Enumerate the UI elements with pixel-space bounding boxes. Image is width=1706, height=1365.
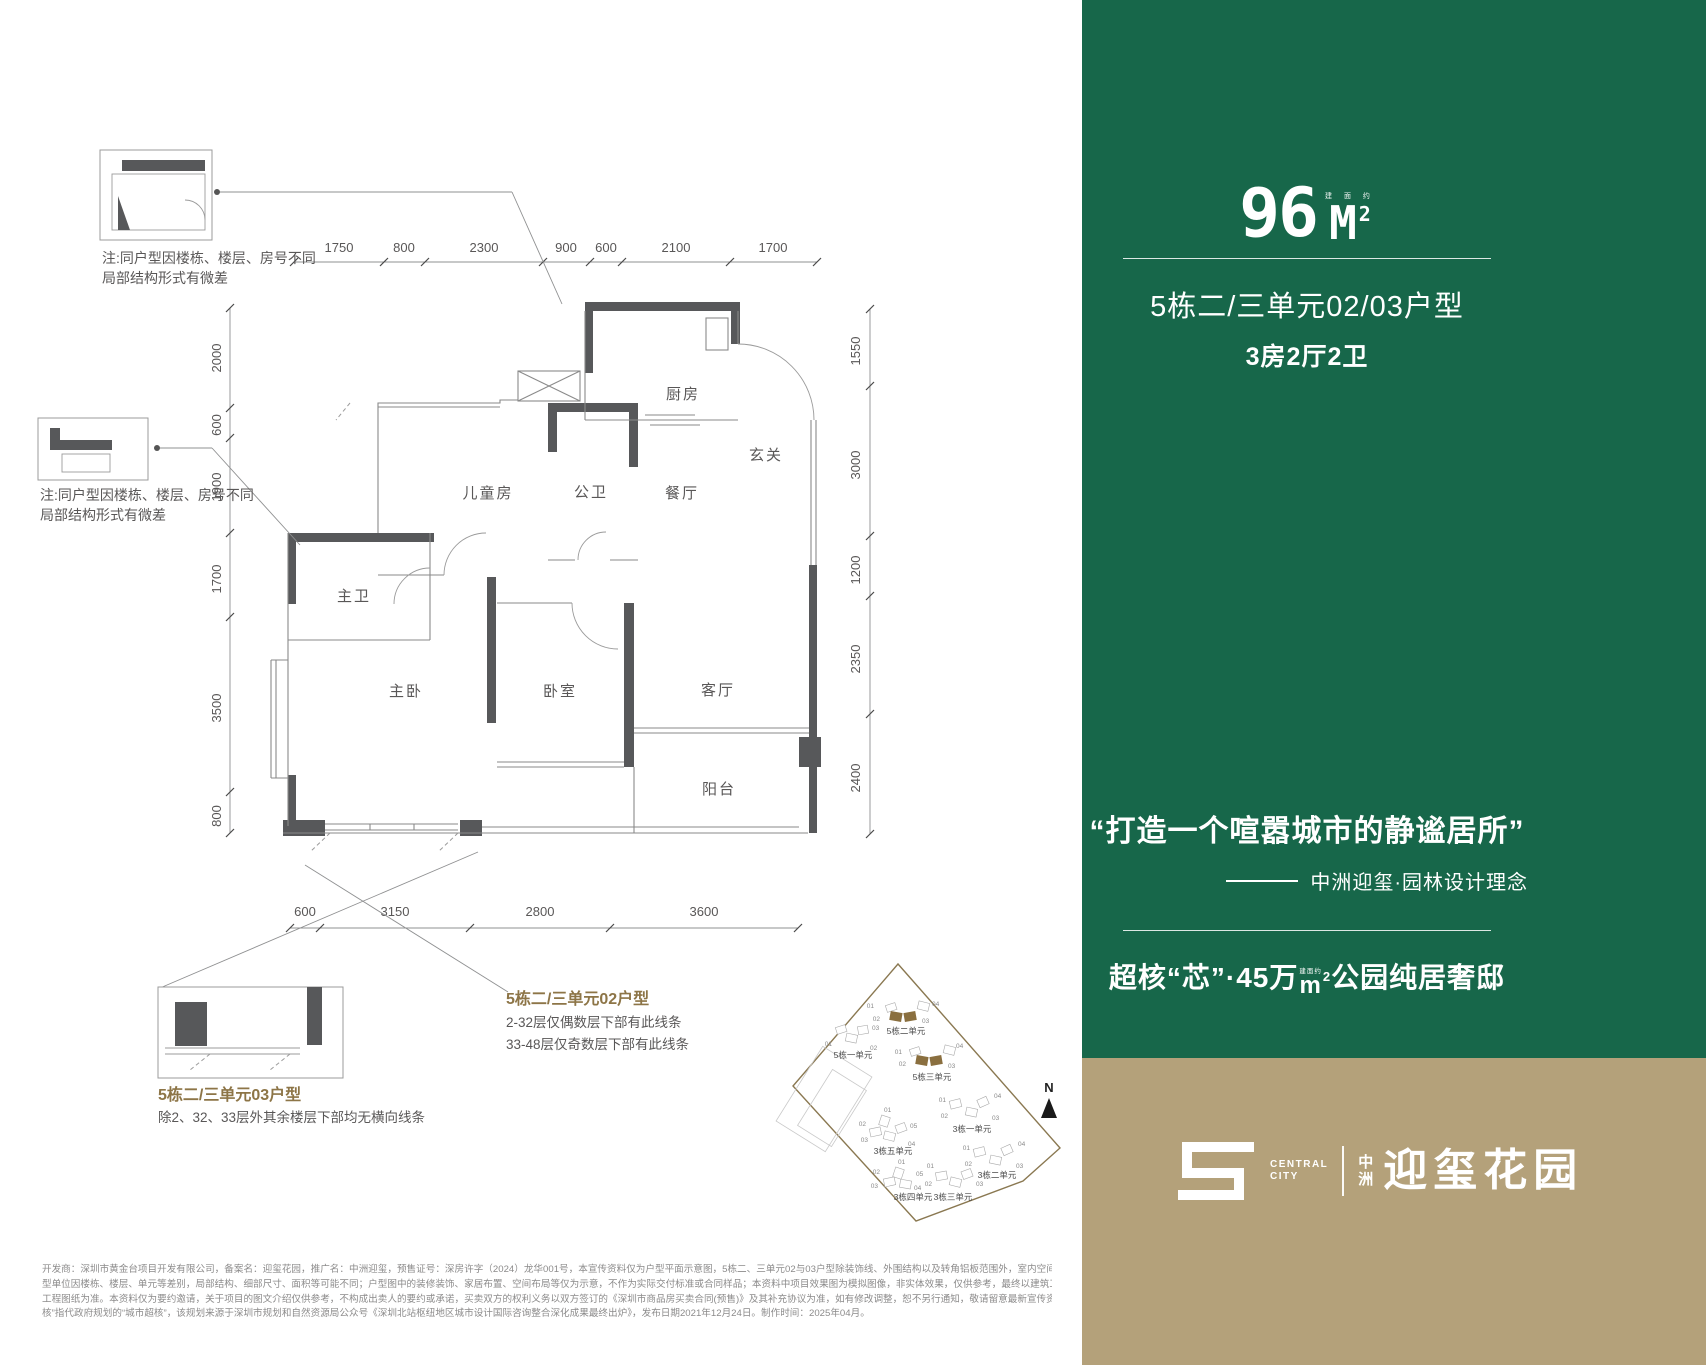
- central-city-wordmark: CENTRAL CITY: [1270, 1159, 1328, 1183]
- site-num: 02: [925, 1181, 933, 1188]
- dim-left-5: 800: [209, 805, 224, 827]
- dim-top-6: 1700: [759, 240, 788, 255]
- callout02-title: 5栋二/三单元02户型: [506, 989, 649, 1008]
- dim-left-0: 2000: [209, 344, 224, 373]
- room-label-master-bed: 主卧: [389, 683, 423, 700]
- site-cluster-label: 3栋三单元: [934, 1192, 973, 1202]
- area-figure: 96 建 面 约 M2: [1082, 186, 1532, 242]
- dim-right-3: 2350: [848, 645, 863, 674]
- dimension-lines: [230, 262, 870, 928]
- area-number: 96: [1239, 186, 1317, 242]
- legal-disclaimer: 开发商：深圳市黄金台项目开发有限公司，备案名：迎玺花园，推广名：中洲迎玺，预售证…: [42, 1263, 1052, 1322]
- site-num: 04: [932, 1001, 940, 1008]
- dim-right-0: 1550: [848, 337, 863, 366]
- dim-top-1: 800: [393, 240, 415, 255]
- dim-top-2: 2300: [470, 240, 499, 255]
- marketing-panel: 96 建 面 约 M2 5栋二/三单元02/03户型 3房2厅2卫 “打造一个喧…: [1082, 0, 1706, 1058]
- zhongzhou-stack: 中 洲: [1358, 1154, 1373, 1188]
- site-cluster-label: 5栋一单元: [834, 1050, 873, 1060]
- unit-layout-subtitle: 3房2厅2卫: [1082, 337, 1532, 373]
- logo-divider: [1342, 1146, 1344, 1196]
- site-num: 04: [914, 1185, 922, 1192]
- note1-line1: 注:同户型因楼栋、楼层、房号不同: [102, 250, 316, 266]
- dim-right-4: 2400: [848, 764, 863, 793]
- site-num: 03: [1016, 1163, 1024, 1170]
- site-num: 02: [873, 1169, 881, 1176]
- site-cluster-label: 3栋二单元: [978, 1170, 1017, 1180]
- site-num: 03: [976, 1181, 984, 1188]
- site-num: 01: [895, 1049, 903, 1056]
- site-num: 01: [898, 1159, 906, 1166]
- dim-right-2: 1200: [848, 556, 863, 585]
- dim-top-4: 600: [595, 240, 617, 255]
- quote-attribution: 中洲迎玺·园林设计理念: [1082, 866, 1532, 895]
- dim-bottom-3: 3600: [690, 904, 719, 919]
- site-num: 03: [861, 1137, 869, 1144]
- dim-top-3: 900: [555, 240, 577, 255]
- note2-line1: 注:同户型因楼栋、楼层、房号不同: [40, 487, 254, 503]
- project-name: 迎玺花园: [1383, 1149, 1583, 1193]
- site-num: 01: [867, 1003, 875, 1010]
- sqm-unit: 建面约 m: [1299, 965, 1322, 996]
- dim-bottom-1: 3150: [381, 904, 410, 919]
- room-labels: 厨房 玄关 餐厅 公卫 儿童房 主卫 主卧 卧室 客厅 阳台: [337, 386, 783, 798]
- callout03-line1: 除2、32、33层外其余楼层下部均无横向线条: [158, 1109, 426, 1125]
- detail-callout-3: [158, 852, 508, 1078]
- divider-line: [1123, 258, 1491, 259]
- site-num: 03: [948, 1063, 956, 1070]
- slogan-quote: “打造一个喧嚣城市的静谧居所”: [1082, 806, 1532, 850]
- room-label-entry: 玄关: [749, 447, 783, 464]
- site-num: 05: [910, 1123, 918, 1130]
- park-headline: 超核“芯”·45万 建面约 m 2 公园纯居奢邸: [1082, 956, 1532, 996]
- area-approx-label: 建 面 约: [1325, 191, 1375, 201]
- brand-panel: CENTRAL CITY 中 洲 迎玺花园: [1082, 1058, 1706, 1365]
- room-label-bedroom: 卧室: [543, 683, 577, 700]
- site-num: 01: [963, 1145, 971, 1152]
- site-cluster-3-3: 01 02 03 3栋三单元: [925, 1163, 984, 1202]
- site-num: 03: [872, 1025, 880, 1032]
- site-num: 02: [965, 1161, 973, 1168]
- site-cluster-5-1: 01 02 03 5栋一单元: [825, 1025, 880, 1060]
- dim-left-3: 1700: [209, 565, 224, 594]
- callout02-line1: 2-32层仅偶数层下部有此线条: [506, 1014, 682, 1030]
- brand-logo: CENTRAL CITY 中 洲 迎玺花园: [1178, 1142, 1583, 1200]
- dimension-labels: 1750 800 2300 900 600 2100 1700 2000 600…: [209, 240, 863, 919]
- room-label-dining: 餐厅: [665, 485, 699, 502]
- room-label-guest-bath: 公卫: [574, 484, 608, 501]
- site-cluster-label: 3栋一单元: [953, 1124, 992, 1134]
- disclaimer-line: 开发商：深圳市黄金台项目开发有限公司，备案名：迎玺花园，推广名：中洲迎玺，预售证…: [42, 1263, 1052, 1278]
- site-cluster-label: 3栋四单元: [894, 1192, 933, 1202]
- disclaimer-line: 工程图纸为准。本资料仅为要约邀请，关于项目的图文介绍仅供参考，不构成出卖人的要约…: [42, 1293, 1052, 1308]
- site-map: 01 02 03 04 5栋二单元 01 02 03 5栋一单元: [776, 964, 1060, 1221]
- dashed-marks: [310, 403, 458, 852]
- dim-top-5: 2100: [662, 240, 691, 255]
- site-num: 01: [939, 1097, 947, 1104]
- disclaimer-line: 核”指代政府规划的“城市超核”，该规划来源于深圳市规划和自然资源局公众号《深圳北…: [42, 1307, 1052, 1322]
- site-cluster-5-3: 01 02 03 04 5栋三单元: [895, 1043, 964, 1082]
- compass-label: N: [1044, 1080, 1053, 1095]
- site-cluster-3-1: 01 02 03 04 3栋一单元: [939, 1093, 1002, 1134]
- site-num: 04: [1018, 1141, 1026, 1148]
- dim-left-1: 600: [209, 414, 224, 436]
- divider-line-2: [1123, 930, 1491, 931]
- dim-right-1: 3000: [848, 451, 863, 480]
- dim-top-0: 1750: [325, 240, 354, 255]
- room-label-balcony: 阳台: [702, 781, 736, 798]
- room-label-living: 客厅: [701, 682, 735, 699]
- site-num: 05: [916, 1171, 924, 1178]
- note2-line2: 局部结构形式有微差: [40, 507, 166, 523]
- site-num: 01: [884, 1107, 892, 1114]
- plan-outline: [271, 311, 816, 833]
- site-num: 04: [956, 1043, 964, 1050]
- site-num: 02: [899, 1061, 907, 1068]
- disclaimer-line: 型单位因楼栋、楼层、单元等差别，局部结构、细部尺寸、面积等可能不同；户型图中的装…: [42, 1278, 1052, 1293]
- site-num: 02: [873, 1016, 881, 1023]
- site-cluster-label: 5栋三单元: [913, 1072, 952, 1082]
- site-num: 03: [922, 1018, 930, 1025]
- detail-callout-2: 注:同户型因楼栋、楼层、房号不同 局部结构形式有微差: [38, 418, 300, 545]
- site-num: 02: [941, 1113, 949, 1120]
- dim-bottom-2: 2800: [526, 904, 555, 919]
- site-num: 02: [859, 1121, 867, 1128]
- brochure-page: 1750 800 2300 900 600 2100 1700 2000 600…: [0, 0, 1706, 1365]
- note1-line2: 局部结构形式有微差: [102, 270, 228, 286]
- site-cluster-3-4: 01 02 03 04 05 3栋四单元: [871, 1159, 933, 1202]
- room-label-master-bath: 主卫: [337, 588, 371, 605]
- room-label-kids-room: 儿童房: [462, 484, 513, 502]
- dim-bottom-0: 600: [294, 904, 316, 919]
- area-unit: M2: [1329, 205, 1371, 242]
- unit-type-title: 5栋二/三单元02/03户型: [1082, 283, 1532, 325]
- site-num: 03: [871, 1183, 879, 1190]
- walls: [283, 302, 821, 836]
- detail-callout-1: 注:同户型因楼栋、楼层、房号不同 局部结构形式有微差: [100, 150, 562, 304]
- site-num: 04: [994, 1093, 1002, 1100]
- site-num: 01: [927, 1163, 935, 1170]
- floor-plan: 1750 800 2300 900 600 2100 1700 2000 600…: [0, 0, 1082, 1365]
- site-num: 01: [825, 1041, 833, 1048]
- compass-north-icon: N: [1041, 1080, 1057, 1118]
- site-cluster-label: 3栋五单元: [874, 1146, 913, 1156]
- central-city-mark-icon: [1178, 1142, 1258, 1200]
- site-num: 03: [992, 1115, 1000, 1122]
- callout02-line2: 33-48层仅奇数层下部有此线条: [506, 1036, 690, 1052]
- site-cluster-label: 5栋二单元: [887, 1026, 926, 1036]
- attribution-dash: [1226, 880, 1298, 882]
- site-cluster-3-5: 01 02 03 04 05 3栋五单元: [859, 1107, 918, 1156]
- callout03-title: 5栋二/三单元03户型: [158, 1085, 301, 1104]
- dim-left-4: 3500: [209, 694, 224, 723]
- room-label-kitchen: 厨房: [666, 386, 700, 403]
- area-superscript: 2: [1359, 202, 1371, 226]
